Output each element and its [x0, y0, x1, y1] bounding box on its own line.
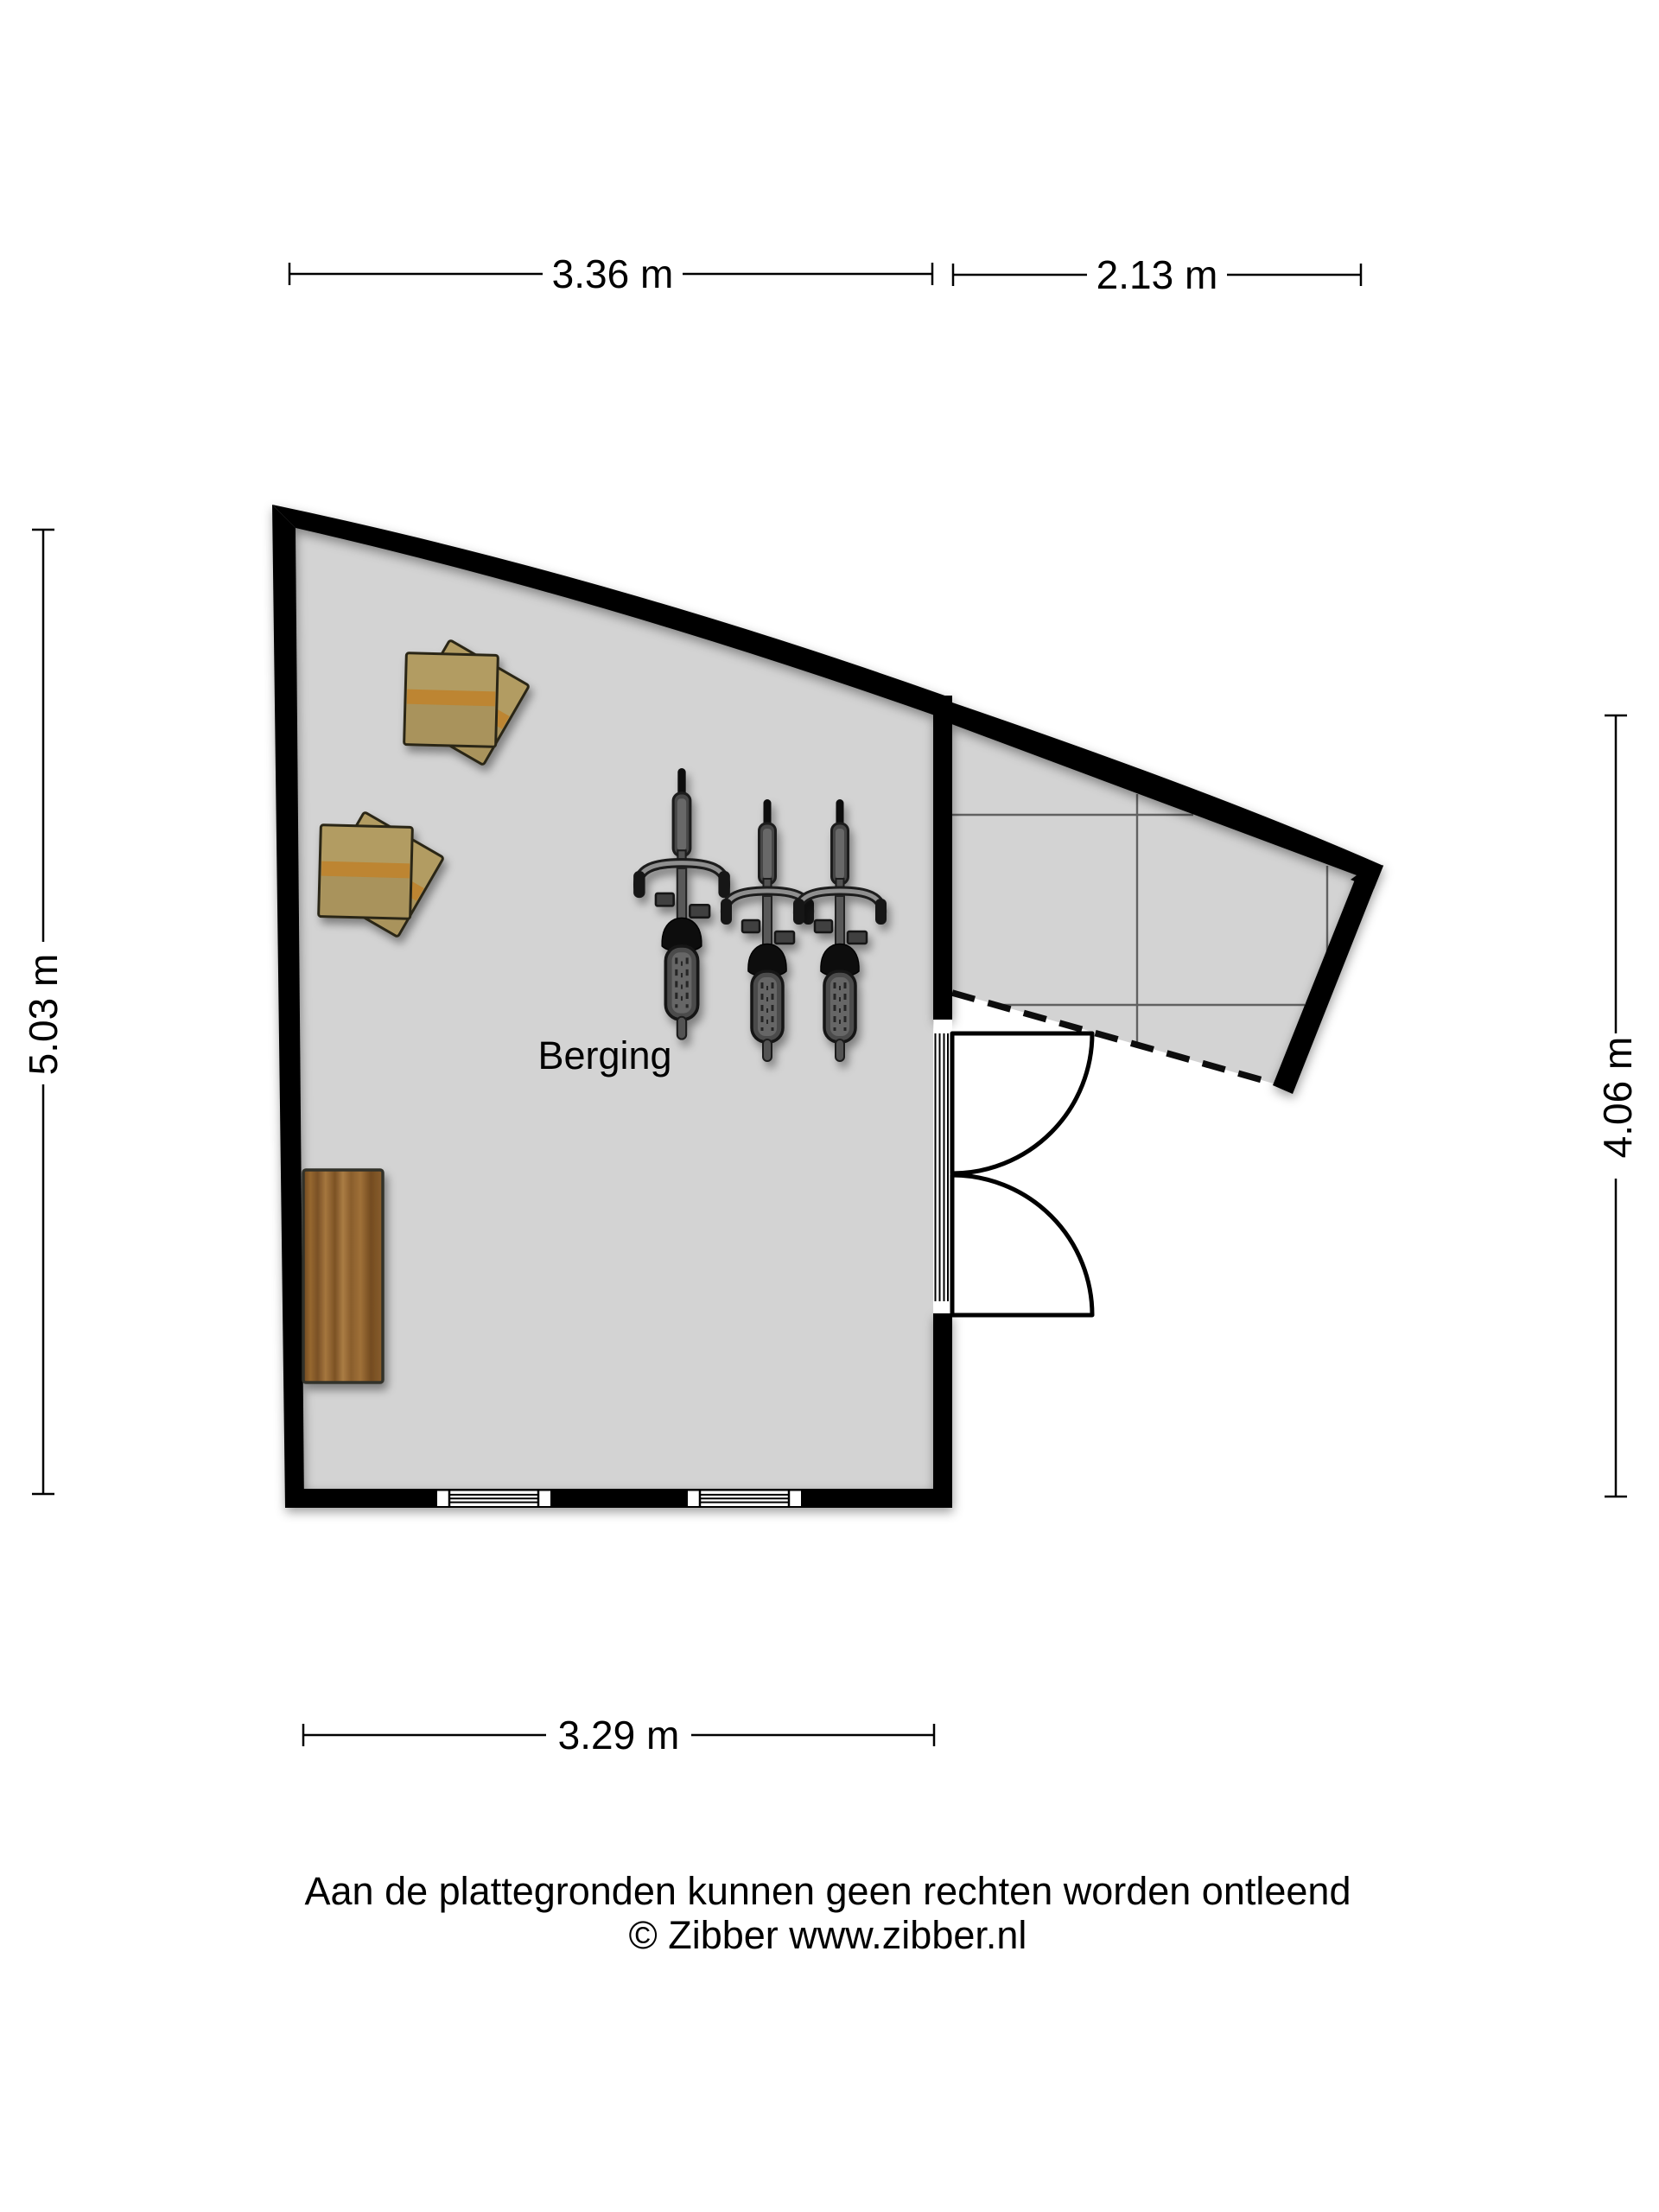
svg-text:Aan de plattegronden kunnen ge: Aan de plattegronden kunnen geen rechten…	[305, 1869, 1351, 1913]
svg-text:Berging: Berging	[537, 1033, 671, 1077]
svg-text:3.36 m: 3.36 m	[552, 251, 674, 296]
svg-text:2.13 m: 2.13 m	[1096, 252, 1218, 297]
svg-text:5.03 m: 5.03 m	[21, 954, 66, 1076]
svg-text:3.29 m: 3.29 m	[558, 1713, 680, 1758]
svg-text:© Zibber www.zibber.nl: © Zibber www.zibber.nl	[629, 1913, 1027, 1957]
svg-text:4.06 m: 4.06 m	[1595, 1037, 1640, 1159]
